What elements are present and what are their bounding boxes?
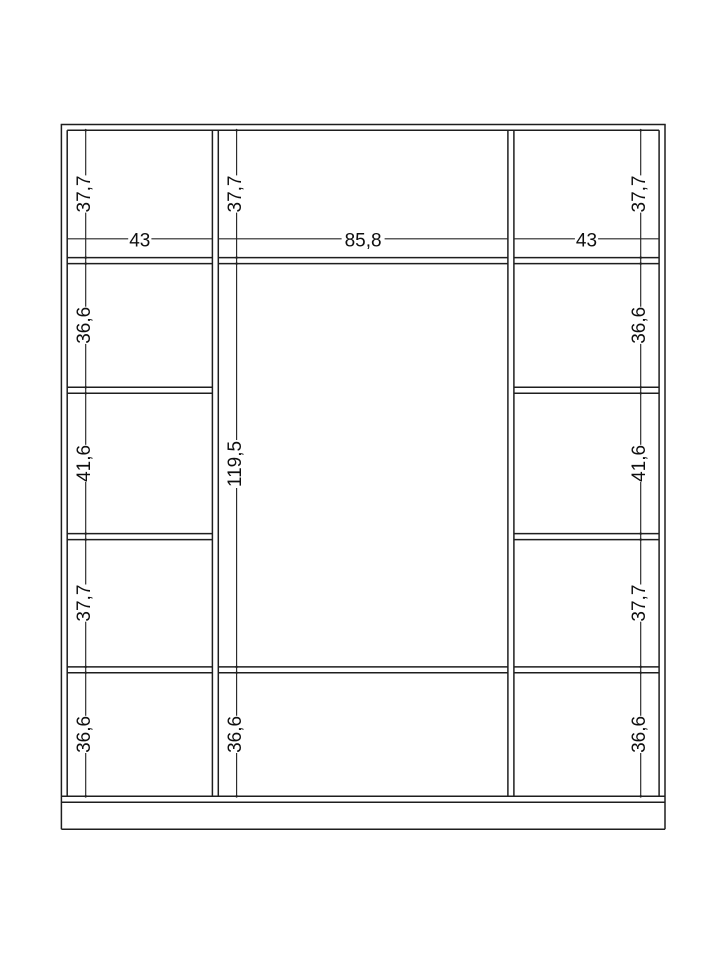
svg-text:37,7: 37,7 <box>629 176 650 213</box>
svg-text:119,5: 119,5 <box>225 441 246 487</box>
svg-text:37,7: 37,7 <box>74 176 95 213</box>
svg-text:43: 43 <box>576 231 597 252</box>
svg-text:36,6: 36,6 <box>74 307 95 344</box>
svg-text:37,7: 37,7 <box>629 585 650 622</box>
svg-text:85,8: 85,8 <box>345 231 382 252</box>
svg-text:36,6: 36,6 <box>225 716 246 753</box>
svg-text:43: 43 <box>129 231 150 252</box>
svg-text:36,6: 36,6 <box>629 716 650 753</box>
svg-text:36,6: 36,6 <box>629 307 650 344</box>
svg-text:37,7: 37,7 <box>225 176 246 213</box>
svg-text:41,6: 41,6 <box>629 445 650 482</box>
svg-text:41,6: 41,6 <box>74 445 95 482</box>
svg-text:37,7: 37,7 <box>74 585 95 622</box>
svg-text:36,6: 36,6 <box>74 716 95 753</box>
